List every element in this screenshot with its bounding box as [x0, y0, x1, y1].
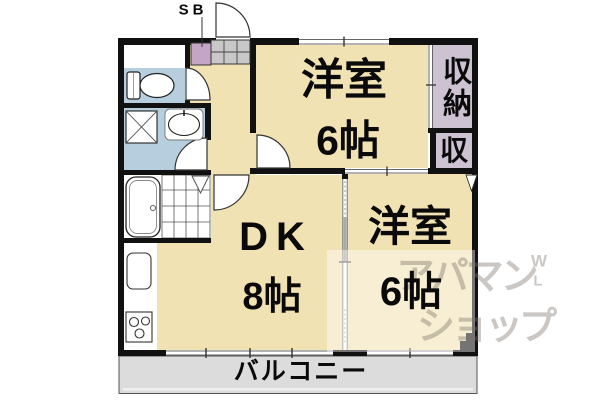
wall-bedroom-top-bottom	[250, 168, 345, 174]
wall-bathroom-kitchen	[118, 238, 211, 243]
entrance-shelf	[211, 40, 250, 64]
wall-washroom-bathroom	[118, 170, 211, 175]
wall-toilet-washroom	[118, 103, 211, 108]
balcony-label: バルコニー	[234, 360, 369, 385]
wall-below-closet-small	[428, 168, 478, 174]
stove-fixture	[126, 312, 152, 342]
toilet-fixture	[127, 72, 174, 99]
watermark-mark-bottom: L	[533, 274, 542, 289]
wall-toilet-right-upper	[185, 45, 190, 68]
floorplan-canvas: アパマン W L ショップ SB 洋室 6帖 収納 収 DK 8帖 洋室 6帖 …	[0, 0, 600, 400]
wall-top-mid	[250, 38, 299, 45]
sb-label: SB	[179, 3, 208, 18]
door-arc-entrance	[216, 3, 250, 37]
bedroom-right-name: 洋室	[368, 206, 452, 248]
wall-washroom-right	[205, 108, 211, 140]
wall-closet-small-left	[430, 133, 436, 168]
shoe-box	[191, 43, 211, 65]
dk-size: 8帖	[242, 278, 301, 316]
wall-toilet-right-lower	[185, 100, 190, 108]
kitchen-sink-fixture	[127, 253, 151, 289]
wall-partition-cap	[342, 174, 348, 179]
balcony-inner-edge	[123, 388, 473, 391]
wall-between-closets	[428, 128, 478, 133]
wall-bottom-left	[118, 350, 166, 356]
bedroom-right-size: 6帖	[380, 272, 442, 312]
wall-left	[118, 38, 124, 356]
closet-small-label: 収	[440, 137, 468, 165]
watermark-mark-top: W	[531, 253, 547, 270]
bathtub-fixture	[126, 177, 160, 237]
bedroom-top-name: 洋室	[301, 60, 387, 103]
washing-machine-fixture	[126, 111, 157, 143]
bedroom-top-size: 6帖	[316, 121, 380, 162]
wall-top-right	[389, 38, 478, 45]
wall-hall-bedroom-top	[250, 38, 256, 133]
washroom-sink-fixture	[165, 109, 203, 140]
closet-main-label: 収納	[440, 56, 469, 120]
dk-name: DK	[239, 217, 313, 257]
